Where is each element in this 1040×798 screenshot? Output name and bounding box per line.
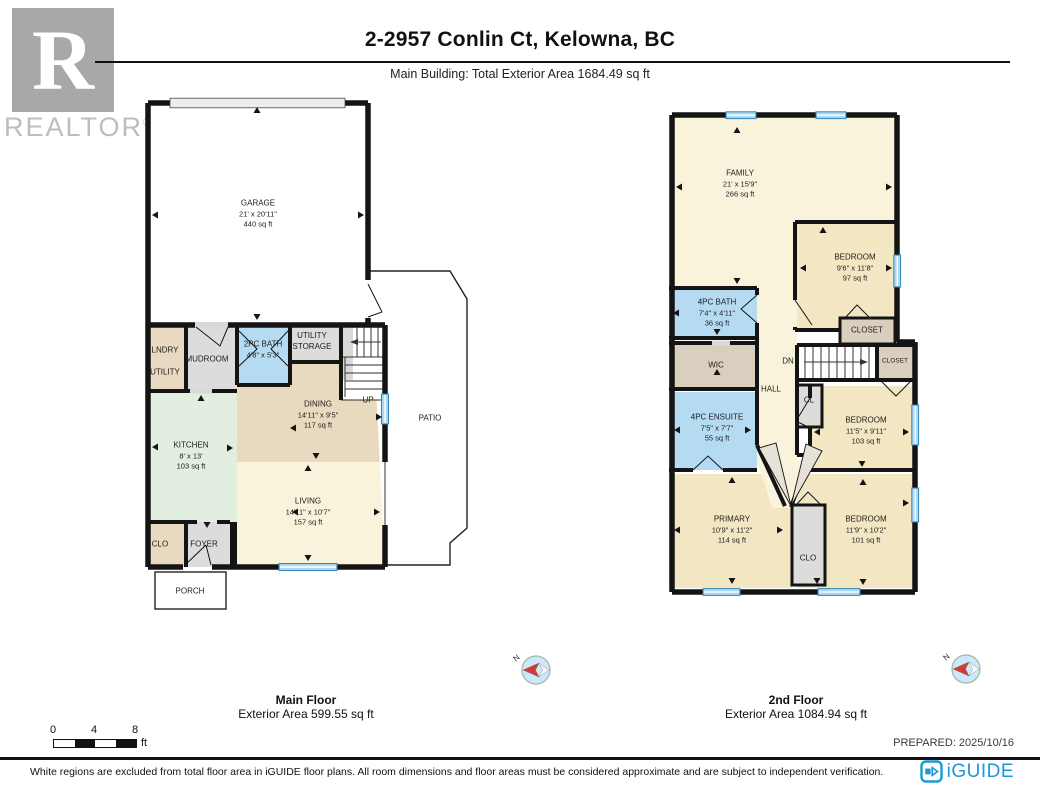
compass-icon: N xyxy=(938,647,984,689)
page-subtitle: Main Building: Total Exterior Area 1684.… xyxy=(0,67,1040,81)
room-name: BEDROOM xyxy=(834,252,875,263)
room-dims: 7'4" x 4'11" xyxy=(698,308,737,318)
room-label-foyer: FOYER xyxy=(190,540,218,551)
north-label: N xyxy=(941,652,951,663)
room-dims: 14'11" x 10'7" xyxy=(286,507,331,517)
floor-name: Main Floor xyxy=(238,693,373,707)
room-area: 114 sq ft xyxy=(712,535,753,545)
room-dims: 8' x 13' xyxy=(173,451,208,461)
room-name: 2PC BATH xyxy=(244,340,283,351)
room-area: 103 sq ft xyxy=(845,436,886,446)
scale-unit: ft xyxy=(141,737,147,749)
scale-tick-8: 8 xyxy=(132,724,138,736)
scale-tick-0: 0 xyxy=(50,724,56,736)
room-name: WIC xyxy=(708,361,724,372)
room-dims: 7'5" x 7'7" xyxy=(691,423,743,433)
room-name: DN xyxy=(782,357,794,368)
room-label-lndry: LNDRY xyxy=(152,346,179,357)
second-floor-caption: 2nd Floor Exterior Area 1084.94 sq ft xyxy=(725,693,867,721)
room-dims: 11'5" x 9'11" xyxy=(845,426,886,436)
room-name: UTILITY xyxy=(293,331,332,342)
room-area: 97 sq ft xyxy=(834,273,875,283)
room-dims: 4'8" x 5'3" xyxy=(244,350,283,360)
room-label-family: FAMILY 21' x 15'9" 266 sq ft xyxy=(723,168,757,199)
room-label-mudroom: MUDROOM xyxy=(185,355,228,366)
compass-icon: N xyxy=(508,648,554,690)
room-name: STORAGE xyxy=(293,342,332,353)
room-name: BEDROOM xyxy=(845,415,886,426)
main-floor-caption: Main Floor Exterior Area 599.55 sq ft xyxy=(238,693,373,721)
room-label-bath: 2PC BATH 4'8" x 5'3" xyxy=(244,340,283,361)
room-label-garage: GARAGE 21' x 20'11" 440 sq ft xyxy=(239,198,277,229)
compass-second: N xyxy=(938,647,984,694)
room-dims: 14'11" x 9'5" xyxy=(298,410,339,420)
iguide-wordmark: iGUIDE xyxy=(947,761,1014,783)
room-name: FAMILY xyxy=(723,168,757,179)
room-name: DINING xyxy=(298,399,339,410)
room-label-ensuite: 4PC ENSUITE 7'5" x 7'7" 55 sq ft xyxy=(691,412,743,443)
room-dims: 10'9" x 11'2" xyxy=(712,525,753,535)
room-label-dining: DINING 14'11" x 9'5" 117 sq ft xyxy=(298,399,339,430)
room-name: HALL xyxy=(761,385,781,396)
room-label-wic: WIC xyxy=(708,361,724,372)
page-title: 2-2957 Conlin Ct, Kelowna, BC xyxy=(0,28,1040,52)
room-area: 157 sq ft xyxy=(286,517,331,527)
footer-disclaimer: White regions are excluded from total fl… xyxy=(30,766,883,778)
room-name: CLO xyxy=(152,540,168,551)
prepared-date: PREPARED: 2025/10/16 xyxy=(893,737,1014,749)
scale-tick-4: 4 xyxy=(91,724,97,736)
room-label-living: LIVING 14'11" x 10'7" 157 sq ft xyxy=(286,496,331,527)
room-label-porch: PORCH xyxy=(176,587,205,598)
room-label-hall: HALL xyxy=(761,385,781,396)
room-dims: 21' x 15'9" xyxy=(723,179,757,189)
realtor-wordmark: REALTOR® xyxy=(4,112,153,143)
room-fills xyxy=(148,103,385,567)
scale-bar xyxy=(53,739,137,748)
room-area: 55 sq ft xyxy=(691,433,743,443)
floor-name: 2nd Floor xyxy=(725,693,867,707)
room-label-kitchen: KITCHEN 8' x 13' 103 sq ft xyxy=(173,440,208,471)
floor-area: Exterior Area 599.55 sq ft xyxy=(238,707,373,721)
realtor-logo: R xyxy=(12,8,114,112)
room-name: PORCH xyxy=(176,587,205,598)
room-name: GARAGE xyxy=(239,198,277,209)
room-dims: 9'6" x 11'8" xyxy=(834,263,875,273)
room-name: CLOSET xyxy=(851,326,883,337)
stairs-down-label: DN xyxy=(782,357,794,368)
room-name: UP xyxy=(362,396,373,407)
room-label-lndry-utility: UTILITY xyxy=(150,368,180,379)
floor-area: Exterior Area 1084.94 sq ft xyxy=(725,707,867,721)
iguide-logo: iGUIDE xyxy=(920,760,1014,783)
room-name: PATIO xyxy=(419,414,442,425)
room-name: 4PC ENSUITE xyxy=(691,412,743,423)
room-name: 4PC BATH xyxy=(698,297,737,308)
room-label-closet2: CLOSET xyxy=(882,358,908,367)
room-label-bedroom2: BEDROOM 11'5" x 9'11" 103 sq ft xyxy=(845,415,886,446)
main-floor-plan: GARAGE 21' x 20'11" 440 sq ft LNDRY UTIL… xyxy=(140,95,485,625)
room-name: UTILITY xyxy=(150,368,180,379)
room-area: 440 sq ft xyxy=(239,219,277,229)
room-name: CLO xyxy=(800,554,816,565)
room-label-bath2: 4PC BATH 7'4" x 4'11" 36 sq ft xyxy=(698,297,737,328)
room-label-patio: PATIO xyxy=(419,414,442,425)
room-label-primary: PRIMARY 10'9" x 11'2" 114 sq ft xyxy=(712,514,753,545)
compass-main: N xyxy=(508,648,554,695)
room-label-bedroom3: BEDROOM 11'9" x 10'2" 101 sq ft xyxy=(845,514,886,545)
room-area: 101 sq ft xyxy=(845,535,886,545)
stairs-up-label: UP xyxy=(362,396,373,407)
room-label-closet1: CLOSET xyxy=(851,326,883,337)
north-label: N xyxy=(511,653,521,664)
room-label-bedroom1: BEDROOM 9'6" x 11'8" 97 sq ft xyxy=(834,252,875,283)
second-floor-plan: FAMILY 21' x 15'9" 266 sq ft BEDROOM 9'6… xyxy=(660,105,940,605)
room-label-cl: CL xyxy=(804,396,814,407)
room-label-clo2: CLO xyxy=(800,554,816,565)
footer-divider xyxy=(0,757,1040,760)
room-name: BEDROOM xyxy=(845,514,886,525)
room-name: PRIMARY xyxy=(712,514,753,525)
room-area: 266 sq ft xyxy=(723,189,757,199)
room-name: CLOSET xyxy=(882,358,908,367)
room-dims: 21' x 20'11" xyxy=(239,209,277,219)
room-name: CL xyxy=(804,396,814,407)
room-name: MUDROOM xyxy=(185,355,228,366)
room-name: LNDRY xyxy=(152,346,179,357)
room-area: 36 sq ft xyxy=(698,318,737,328)
second-floor-drawing xyxy=(660,105,940,605)
room-name: FOYER xyxy=(190,540,218,551)
room-label-storage: UTILITY STORAGE xyxy=(293,331,332,353)
room-name: LIVING xyxy=(286,496,331,507)
realtor-text: REALTOR xyxy=(4,112,143,142)
title-divider xyxy=(95,61,1010,63)
room-area: 117 sq ft xyxy=(298,420,339,430)
room-name: KITCHEN xyxy=(173,440,208,451)
iguide-icon xyxy=(920,760,943,783)
room-label-clo: CLO xyxy=(152,540,168,551)
wall-openings xyxy=(712,341,730,346)
room-dims: 11'9" x 10'2" xyxy=(845,525,886,535)
garage-door xyxy=(170,98,345,108)
room-area: 103 sq ft xyxy=(173,461,208,471)
